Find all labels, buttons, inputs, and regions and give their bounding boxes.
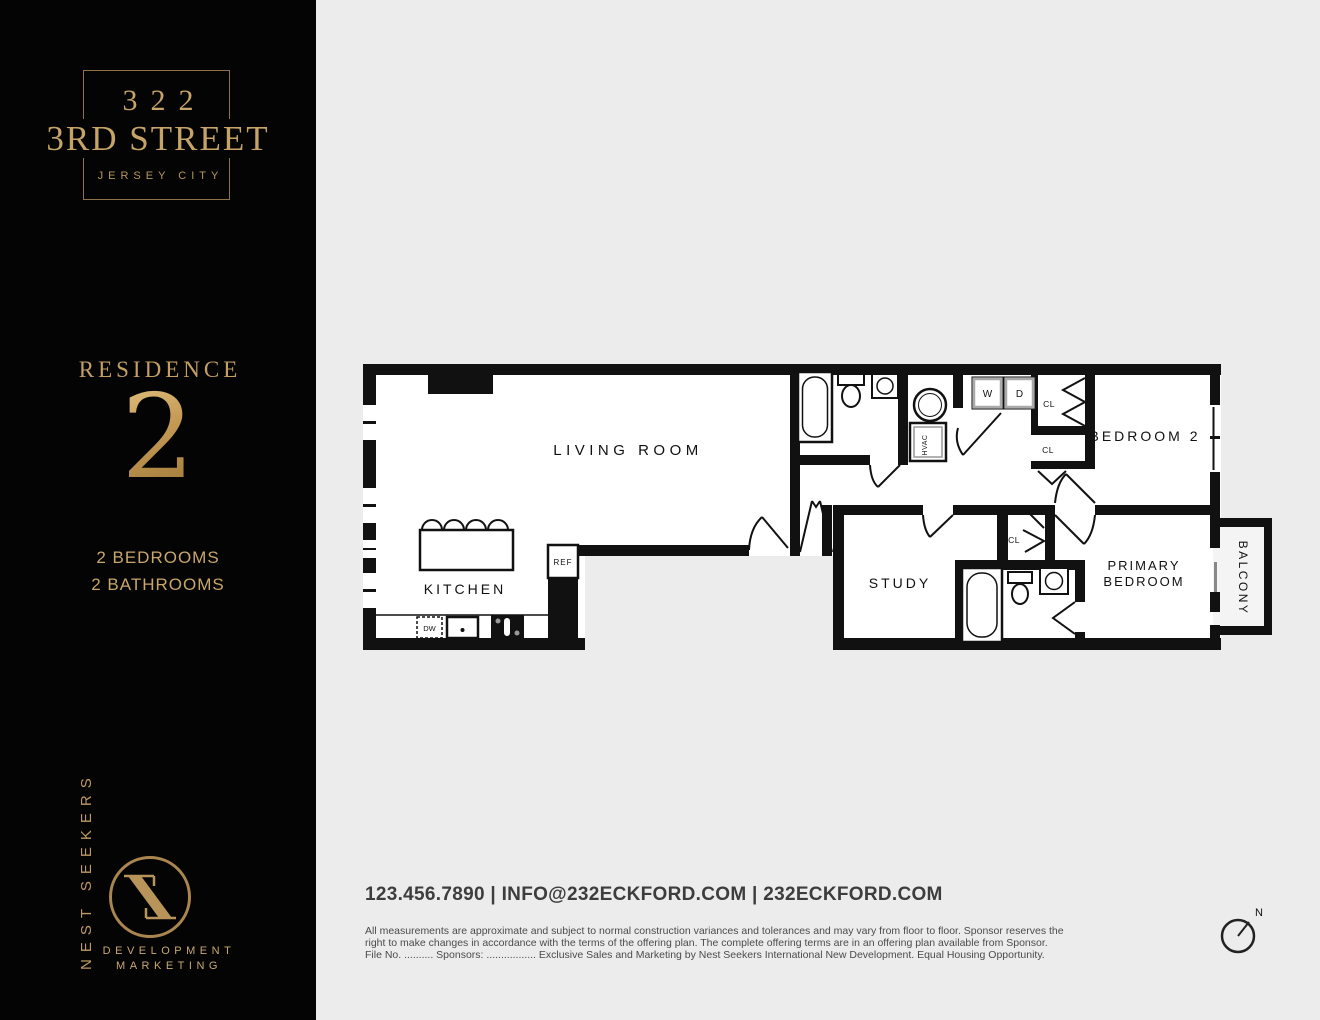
kitchen-island <box>420 530 513 570</box>
left-wall-windows <box>363 405 376 608</box>
closet3-label: CL <box>1008 535 1020 545</box>
bath1-toilet <box>838 374 864 385</box>
disclaimer-line-2: right to make changes in accordance with… <box>365 938 1175 950</box>
building-street-text: 3RD STREET <box>43 119 272 158</box>
nest-seekers-monogram-icon <box>106 853 194 941</box>
laundry-fixtures <box>972 377 1035 409</box>
compass-icon: N <box>1214 898 1274 958</box>
hvac-label: HVAC <box>922 435 929 456</box>
closet1-label: CL <box>1043 399 1055 409</box>
brand-line-development: DEVELOPMENT <box>96 944 242 959</box>
living-room-label: LIVING ROOM <box>553 442 703 459</box>
legal-disclaimer: All measurements are approximate and sub… <box>365 926 1175 961</box>
bath2-tub <box>962 568 1002 642</box>
kitchen-label: KITCHEN <box>424 581 506 597</box>
nest-seekers-vertical-wordmark: NEST SEEKERS <box>78 771 95 970</box>
building-number: 322 <box>0 84 316 118</box>
bathrooms-count: 2 BATHROOMS <box>0 575 316 595</box>
ref-label: REF <box>554 558 573 567</box>
bedroom2-window <box>1210 405 1220 472</box>
washer-label: W <box>983 389 993 400</box>
kitchen-sink <box>447 617 478 638</box>
primary-bedroom-label-1: PRIMARY <box>1108 558 1181 573</box>
dw-label: DW <box>423 624 436 633</box>
balcony-door-glass <box>1214 562 1217 592</box>
study-label: STUDY <box>869 575 931 591</box>
bedroom2-label: BEDROOM 2 <box>1089 428 1200 444</box>
closet2-label: CL <box>1042 445 1054 455</box>
dryer-label: D <box>1016 389 1023 400</box>
building-city: JERSEY CITY <box>0 170 316 182</box>
bedrooms-count: 2 BEDROOMS <box>0 548 316 568</box>
brand-development-marketing: DEVELOPMENT MARKETING <box>96 944 242 974</box>
floor-plan: LIVING ROOM KITCHEN STUDY BEDROOM 2 PRIM… <box>360 360 1280 660</box>
primary-bedroom-label-2: BEDROOM <box>1103 574 1184 589</box>
residence-number: 2 <box>0 380 316 496</box>
balcony-label: BALCONY <box>1236 541 1250 616</box>
brand-sidebar: 322 3RD STREET JERSEY CITY RESIDENCE 2 2… <box>0 0 316 1020</box>
compass-north-label: N <box>1255 907 1263 919</box>
disclaimer-line-3: File No. .......... Sponsors: ..........… <box>365 950 1175 962</box>
brand-line-marketing: MARKETING <box>96 959 242 974</box>
building-street: 3RD STREET <box>0 119 316 159</box>
bath2-toilet <box>1008 572 1032 583</box>
contact-line: 123.456.7890 | INFO@232ECKFORD.COM | 232… <box>365 884 943 906</box>
